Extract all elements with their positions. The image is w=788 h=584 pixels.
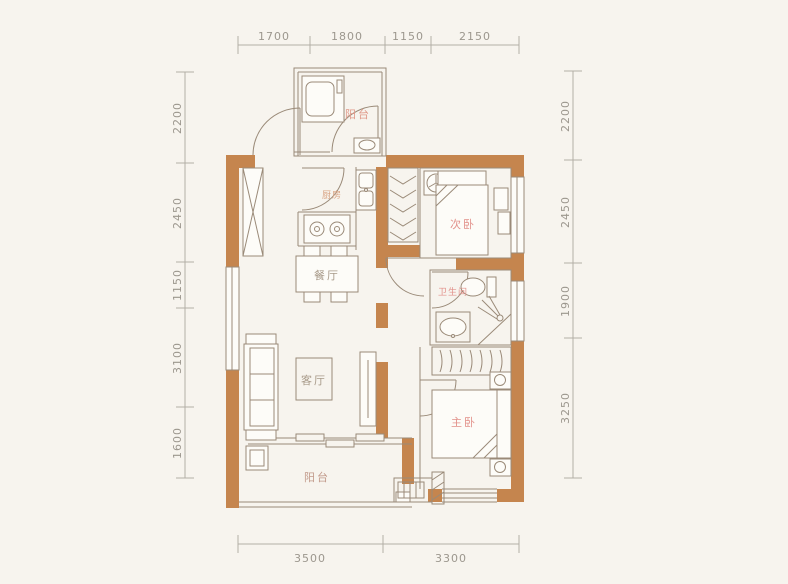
wall: [386, 245, 420, 257]
sliding-door-panels: [296, 434, 384, 447]
flue-hatch-icon: [388, 168, 418, 242]
window: [511, 281, 524, 341]
washing-machine-icon: [302, 76, 344, 122]
shower-icon: [478, 296, 511, 345]
dim-label: 1600: [171, 427, 184, 459]
wardrobe-icon: [494, 188, 510, 234]
room-label-bathroom: 卫生间: [438, 286, 468, 298]
room-label-living-room: 客厅: [301, 373, 327, 387]
bed-icon: [436, 171, 488, 255]
room-label-balcony-top: 阳台: [345, 107, 371, 121]
dim-label: 1800: [331, 30, 363, 43]
dim-label: 3100: [171, 342, 184, 374]
wall: [511, 155, 524, 177]
wall: [386, 155, 524, 168]
wall: [226, 155, 239, 267]
kitchen-door-arc: [302, 168, 344, 210]
shaft-icon: [243, 168, 263, 256]
tv-cabinet-icon: [360, 352, 376, 426]
window: [511, 177, 524, 253]
dim-label: 1900: [559, 285, 572, 317]
wall: [376, 362, 388, 438]
floor-plan: 1700 1800 1150 2150 3500 3300 2200 2450 …: [0, 0, 788, 584]
wall: [226, 370, 239, 508]
washbasin-icon: [436, 312, 470, 342]
dim-label: 3250: [559, 392, 572, 424]
dimension-line-bottom: [238, 535, 519, 553]
dim-label: 1150: [171, 269, 184, 301]
dim-label: 2450: [559, 196, 572, 228]
sofa-icon: [244, 334, 278, 440]
closet-icon: [432, 347, 511, 375]
wall: [511, 341, 524, 489]
kitchen-sink-icon: [356, 170, 376, 210]
dim-label: 2200: [559, 100, 572, 132]
wall: [511, 253, 524, 281]
room-label-second-bedroom: 次卧: [450, 217, 476, 231]
water-heater-icon: [246, 446, 268, 470]
entry-door-arc: [253, 108, 300, 155]
bedroom-door-arc: [386, 258, 424, 296]
floor-plan-image: 1700 1800 1150 2150 3500 3300 2200 2450 …: [0, 0, 788, 584]
dim-label: 2150: [459, 30, 491, 43]
dim-label: 3300: [435, 552, 467, 565]
wall: [376, 303, 388, 328]
dim-label: 2200: [171, 102, 184, 134]
bay-window: [442, 489, 497, 502]
room-label-master-bedroom: 主卧: [451, 416, 477, 429]
ac-unit-icon: [394, 478, 432, 502]
window: [226, 267, 239, 370]
room-label-balcony-bottom: 阳台: [304, 470, 330, 484]
dim-label: 3500: [294, 552, 326, 565]
room-label-kitchen: 厨房: [322, 189, 342, 201]
dim-label: 1150: [392, 30, 424, 43]
wall: [497, 489, 524, 502]
dim-label: 1700: [258, 30, 290, 43]
wall: [402, 438, 414, 484]
stove-icon: [304, 215, 350, 243]
balcony-sink-icon: [354, 138, 380, 153]
wall: [428, 489, 442, 502]
room-label-dining-room: 餐厅: [314, 268, 340, 282]
wall: [456, 258, 511, 270]
dim-label: 2450: [171, 197, 184, 229]
